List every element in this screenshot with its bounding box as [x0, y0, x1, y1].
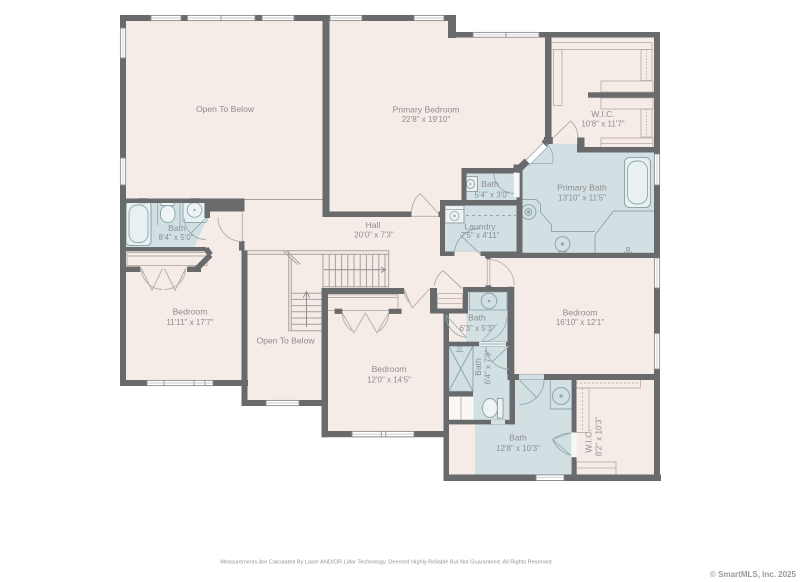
- svg-text:Open To Below: Open To Below: [196, 104, 255, 114]
- svg-text:Bedroom: Bedroom: [372, 364, 407, 374]
- svg-text:13'10" x 11'5": 13'10" x 11'5": [558, 194, 606, 203]
- svg-text:Bath: Bath: [473, 358, 483, 376]
- svg-text:12'0" x 14'5": 12'0" x 14'5": [367, 376, 411, 385]
- svg-text:Bath: Bath: [168, 223, 186, 233]
- svg-text:Laundry: Laundry: [464, 222, 496, 232]
- svg-text:10'8" x 11'7": 10'8" x 11'7": [581, 120, 624, 129]
- svg-text:7'5" x 4'11": 7'5" x 4'11": [461, 231, 500, 240]
- svg-text:6'4" x 7'9": 6'4" x 7'9": [484, 349, 493, 384]
- svg-text:W.I.C.: W.I.C.: [591, 109, 614, 119]
- svg-text:8'2" x 10'3": 8'2" x 10'3": [595, 417, 604, 457]
- svg-text:Bedroom: Bedroom: [563, 308, 598, 318]
- svg-text:6'3" x 5'3": 6'3" x 5'3": [460, 324, 495, 333]
- svg-text:© SmartMLS, Inc. 2025: © SmartMLS, Inc. 2025: [710, 570, 796, 579]
- svg-text:Hall: Hall: [366, 220, 381, 230]
- svg-text:Primary Bedroom: Primary Bedroom: [393, 105, 460, 115]
- svg-text:12'8" x 10'3": 12'8" x 10'3": [496, 444, 540, 453]
- svg-text:Bath: Bath: [509, 433, 527, 443]
- svg-text:Open To Below: Open To Below: [256, 336, 315, 346]
- svg-text:11'11" x 17'7": 11'11" x 17'7": [166, 318, 213, 327]
- svg-text:Primary Bath: Primary Bath: [557, 183, 607, 193]
- svg-text:20'0" x 7'3": 20'0" x 7'3": [354, 231, 394, 240]
- svg-text:W.I.C.: W.I.C.: [584, 429, 594, 452]
- svg-text:8'4" x 5'0": 8'4" x 5'0": [159, 233, 194, 242]
- svg-text:16'10" x 12'1": 16'10" x 12'1": [556, 318, 604, 327]
- svg-text:22'8" x 19'10": 22'8" x 19'10": [402, 115, 450, 124]
- svg-text:Bedroom: Bedroom: [173, 307, 208, 317]
- svg-text:Measurements Are Calculated By: Measurements Are Calculated By Laser AND…: [220, 560, 551, 566]
- svg-text:Bath: Bath: [481, 179, 499, 189]
- svg-text:Bath: Bath: [468, 313, 486, 323]
- svg-text:5'4" x 3'0": 5'4" x 3'0": [475, 191, 510, 200]
